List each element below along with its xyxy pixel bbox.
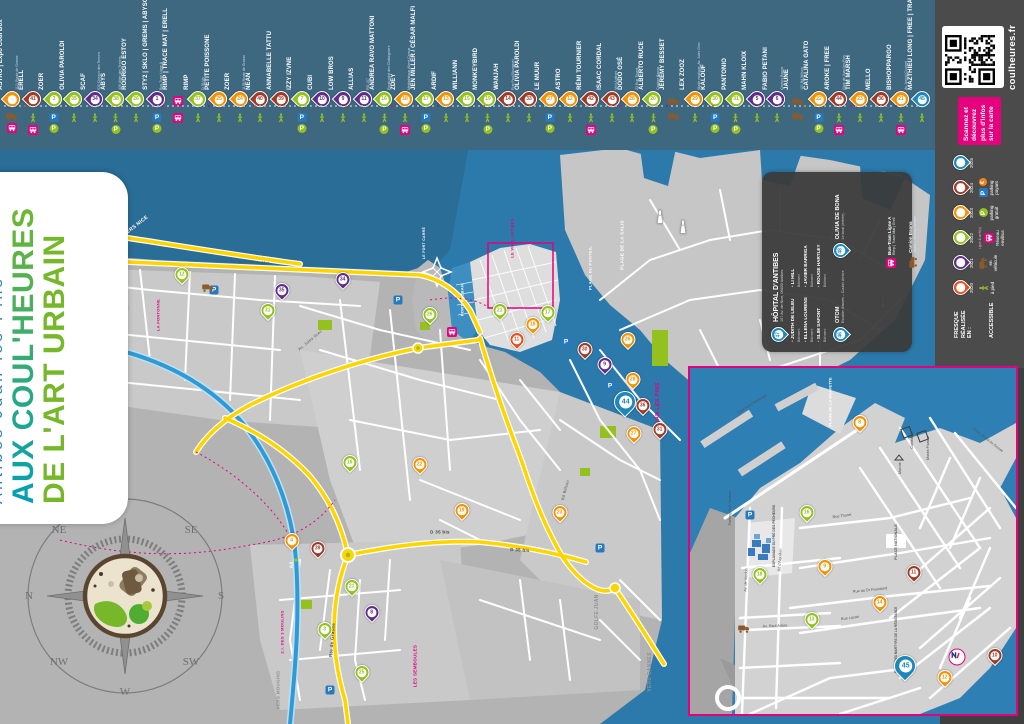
parking-paid-icon[interactable]: P — [979, 189, 988, 198]
artist-name: ABYS — [101, 6, 108, 90]
artist-address: Camion Baona — [656, 6, 660, 90]
artist-address: Gare de Juan-les-Pins — [842, 6, 846, 90]
walk-icon[interactable] — [318, 113, 326, 123]
hospital-artist-sub: Bâtiment — [823, 244, 827, 287]
parking-free-icon[interactable]: P — [111, 125, 120, 134]
hospital-artist-sub: Bâtiment — [823, 297, 827, 342]
walk-icon[interactable] — [91, 113, 99, 123]
parking-paid-icon[interactable]: P — [711, 113, 720, 122]
parking-icon[interactable]: P — [746, 511, 755, 520]
qr-code[interactable] — [942, 26, 1004, 88]
hospital-artist-name: SLIM SAFONT — [816, 297, 821, 342]
walk-icon[interactable] — [979, 284, 989, 292]
transport-legend-chip: Camion BaonaJaune | Jérémy Besset — [908, 176, 917, 268]
legend-access-item: à pied — [979, 277, 1006, 299]
artist-name: OLIVIA PAROLDI — [60, 6, 67, 90]
walk-icon[interactable] — [504, 113, 512, 123]
parking-free-icon[interactable]: P — [483, 125, 492, 134]
compass-point-label: SW — [183, 656, 200, 668]
artist-name: DODO OSÉ — [618, 6, 625, 90]
map-pin[interactable] — [950, 227, 971, 248]
artist-name: RIMP | TRACE MAT | ERELL — [163, 6, 170, 90]
artist-name: OLIVIA PAROLDI — [515, 6, 522, 90]
map-pin[interactable]: 9 — [814, 556, 835, 577]
artist-name: MAZTHIEU LONG | FREE | TRACE MAT — [908, 6, 915, 90]
artist-name: LEX ZOOZ — [680, 6, 687, 90]
hospital-sub-lines: Escalier d'accès – Couloir Ambre — [841, 270, 845, 323]
envibus-icon[interactable] — [834, 125, 844, 135]
compass-point-label: N — [25, 590, 33, 602]
map-pin[interactable]: 48 — [830, 240, 851, 261]
hospital-sub-entry: 48OLIVIA DE BONALe local (entrée) — [833, 194, 848, 258]
map-title-line1: AUX COUL'HEURES — [9, 189, 40, 504]
map-pin[interactable]: 46 — [830, 324, 851, 345]
walk-icon[interactable] — [256, 113, 264, 123]
artist-name: PANTONIO — [722, 6, 729, 90]
parking-free-icon[interactable]: P — [153, 124, 162, 133]
walk-icon[interactable] — [649, 113, 657, 123]
legend-year-item: 2024 — [953, 177, 975, 199]
walk-icon[interactable] — [877, 113, 885, 123]
artist-name: MAHN KLOIX — [742, 6, 749, 90]
walk-icon[interactable] — [773, 113, 781, 123]
parking-free-icon[interactable]: P — [421, 124, 430, 133]
artist-name: JEN MILLER / CÉSAR MALFI — [412, 6, 419, 90]
artist-name: BISHOPPARGO — [887, 6, 894, 90]
map-pin[interactable] — [950, 277, 971, 298]
route-dotted-line — [4, 105, 930, 108]
legend-year-item: 2025 — [953, 152, 975, 174]
walk-icon[interactable] — [215, 113, 223, 123]
walk-icon[interactable] — [132, 113, 140, 123]
legend-year-label: 2024 — [970, 183, 975, 193]
legend-access-row: ACCESSIBLE à pieden véhiculeLigne & arrê… — [979, 152, 1006, 338]
hospital-artist-sub: Bâtiment — [810, 297, 814, 342]
website-url: coulheures.fr — [1007, 25, 1018, 90]
map-pin[interactable] — [950, 202, 971, 223]
legend-access-label: Réseau envibus — [996, 227, 1006, 249]
walk-icon[interactable] — [360, 113, 368, 123]
hospital-artist-sub: Bâtiment — [810, 244, 814, 287]
walk-icon[interactable] — [918, 113, 926, 123]
legend-access-label: parking payant — [990, 177, 1000, 199]
walk-icon[interactable] — [608, 113, 616, 123]
legend-access-item: P€parking payant — [979, 177, 1006, 199]
artist-name: ERELL — [19, 6, 26, 90]
legend-access-item: en véhicule — [979, 252, 1006, 274]
artist-name: RODRIGO ESTOY — [122, 6, 129, 90]
walk-icon[interactable] — [628, 113, 636, 123]
artist-name: FABIO PETANI — [763, 6, 770, 90]
artist-address: Av. Amiral Courbet — [904, 6, 908, 90]
hospital-sub-lines: Le local (entrée) — [841, 194, 845, 239]
map-pin[interactable]: 16 — [796, 502, 817, 523]
map-pin[interactable] — [950, 177, 971, 198]
walk-icon[interactable] — [339, 113, 347, 123]
envibus-icon[interactable] — [586, 125, 596, 135]
parking-paid-icon[interactable]: P — [297, 113, 306, 122]
map-pin[interactable] — [950, 252, 971, 273]
envibus-icon[interactable] — [886, 258, 896, 268]
truck-icon[interactable] — [6, 113, 18, 121]
artist-name: ZOER — [39, 6, 46, 90]
artist-name: WANJAH — [494, 6, 501, 90]
hospital-artist-name: ROUGE HARTLEY — [816, 244, 821, 287]
legend-access-sublabel: Ligne & arrêt(s) — [979, 227, 982, 249]
walk-icon[interactable] — [525, 113, 533, 123]
legend-year-label: 2021 — [970, 258, 975, 268]
hospital-artist-name: JUDITH DE LELEU — [790, 297, 795, 342]
spray-can-illustration — [85, 556, 165, 636]
walk-icon[interactable] — [236, 113, 244, 123]
envibus-icon[interactable] — [7, 123, 17, 133]
legend-year-item: 2023 — [953, 202, 975, 224]
parking-free-icon[interactable]: P — [545, 124, 554, 133]
walk-icon[interactable] — [442, 113, 450, 123]
walk-icon[interactable] — [587, 113, 595, 123]
envibus-icon[interactable] — [984, 233, 994, 243]
legend-year-item: 2021 — [953, 252, 975, 274]
envibus-icon[interactable] — [400, 125, 410, 135]
hospital-artist-sub: Bâtiment — [797, 244, 801, 287]
walk-icon[interactable] — [401, 113, 409, 123]
map-pin[interactable]: 8 — [849, 412, 870, 433]
truck-icon[interactable] — [792, 113, 804, 121]
title-banner: Antibes Juan-les-Pins AUX COUL'HEURES DE… — [0, 172, 128, 524]
map-title-line2: DE L'ART URBAIN — [40, 189, 71, 504]
artist-name: ALLIAS — [350, 6, 357, 90]
map-pin[interactable]: 13 — [801, 609, 822, 630]
chip-line1: Bus-Tram Ligne A — [887, 217, 892, 255]
tourism-logo-icon[interactable] — [949, 649, 966, 666]
artist-name: MELLO — [866, 6, 873, 90]
legend-access-title: ACCESSIBLE — [989, 304, 996, 338]
parking-free-icon[interactable]: P — [649, 125, 658, 134]
artist-name: KALOUF — [701, 6, 708, 90]
legend-access-label: à pied — [991, 282, 996, 294]
hospital-artist-group: LI HILLBâtimentJAVIER BARRIGABâtimentROU… — [790, 244, 827, 287]
artist-name: CATALINA GATO — [804, 6, 811, 90]
legend-year-item: 2020 — [953, 277, 975, 299]
map-pin[interactable]: 14 — [869, 592, 890, 613]
legend-year-label: 2020 — [970, 283, 975, 293]
artist-name: PETITE POISSONE — [205, 6, 212, 90]
walk-icon[interactable] — [29, 113, 37, 123]
parking-free-icon[interactable]: P — [711, 124, 720, 133]
legend-sidebar: FRESQUE RÉALISÉE EN : 202020212022202320… — [935, 0, 1024, 368]
walk-icon[interactable] — [835, 113, 843, 123]
walk-icon[interactable] — [484, 113, 492, 123]
truck-icon[interactable] — [668, 113, 680, 121]
walk-icon[interactable] — [691, 113, 699, 123]
walk-icon[interactable] — [112, 113, 120, 123]
parking-paid-icon[interactable]: P — [814, 113, 823, 122]
artist-name: ARDIF — [432, 6, 439, 90]
truck-icon[interactable] — [909, 256, 917, 268]
map-pin[interactable]: 47 — [768, 324, 789, 345]
walk-icon[interactable] — [566, 113, 574, 123]
artist-name: ANDREA RAVO MATTONI — [370, 6, 377, 90]
hospital-artist-name: LI HILL — [790, 244, 795, 287]
envibus-icon[interactable] — [28, 125, 38, 135]
artist-name: ASTRO — [556, 6, 563, 90]
artist-name: STY2 | SKLO | GREMS | ABYSCAF — [143, 6, 150, 90]
transport-legend-chip: Bus-Tram Ligne ARimp | Trace Mat | Erell — [886, 176, 896, 268]
euro-icon[interactable]: € — [979, 179, 987, 187]
artist-name: ASTRO | Expo Coul'Box — [0, 6, 5, 90]
walk-icon[interactable] — [194, 113, 202, 123]
hospital-artist-group: JUDITH DE LELEUBâtimentELLENA LOURENSBât… — [790, 297, 827, 342]
parking-free-icon[interactable]: P — [297, 124, 306, 133]
compass-point-label: NW — [50, 656, 68, 668]
parking-free-icon[interactable]: P — [380, 125, 389, 134]
envibus-icon[interactable] — [173, 113, 183, 123]
hospital-title: HÔPITAL D'ANTIBES — [773, 253, 780, 322]
artist-name: ZOER — [226, 6, 233, 90]
artist-name: RIMP — [184, 6, 191, 90]
hospital-sub-entry: 46OTOMEscalier d'accès – Couloir Ambre — [833, 270, 848, 342]
legend-year-label: 2025 — [970, 158, 975, 168]
compass-point-label: S — [218, 590, 224, 602]
artist-name: SCAF — [81, 6, 88, 90]
parking-free-icon[interactable]: P — [49, 124, 58, 133]
legend-access-item: Ligne & arrêt(s)Réseau envibus — [979, 227, 1006, 249]
compass-point-label: SE — [185, 524, 198, 536]
artist-name: ANNABELLE TATTU — [267, 6, 274, 90]
hospital-artist-sub: Bâtiment — [797, 297, 801, 342]
artist-name: JAUNE — [784, 6, 791, 90]
chip-line2: Rimp | Trace Mat | Erell — [892, 217, 896, 255]
artist-name: ALBERTO RUCE — [639, 6, 646, 90]
hospital-artist-name: JAVIER BARRIGA — [803, 244, 808, 287]
walk-icon[interactable] — [380, 113, 388, 123]
artist-name: TIM MARSH — [846, 6, 853, 90]
city-title: Antibes Juan-les-Pins — [0, 189, 6, 504]
walk-icon[interactable] — [897, 113, 905, 123]
compass-point-label: NE — [52, 524, 67, 536]
map-pin[interactable]: 10 — [984, 645, 1005, 666]
artist-name: WILLIANN — [453, 6, 460, 90]
walk-icon[interactable] — [463, 113, 471, 123]
walk-icon[interactable] — [856, 113, 864, 123]
artist-name: MONKEYBIRD — [474, 6, 481, 90]
artist-header-bar: ASTRO | Expo Coul'Box→1111 Route de Gras… — [0, 0, 935, 150]
walk-icon[interactable] — [277, 113, 285, 123]
map-pin[interactable]: 11 — [903, 562, 924, 583]
qr-scan-note: Scannez et découvrez plus d'infos sur la… — [958, 97, 1001, 145]
old-town-inset-map: PLAGE DE LA GRAVETTEQuai Henri RambaudPa… — [688, 366, 1018, 716]
artist-address: Camion Baona — [780, 6, 784, 90]
map-pin[interactable]: 12 — [934, 667, 955, 688]
artist-name: AROKE | FREE — [825, 6, 832, 90]
map-pin[interactable]: 18 — [749, 564, 770, 585]
artist-entry: Av. Amiral CourbetMAZTHIEU LONG | FREE |… — [912, 0, 933, 150]
parking-paid-icon[interactable]: P — [545, 113, 554, 122]
map-pin[interactable]: 45 — [889, 650, 920, 681]
walk-icon[interactable] — [70, 113, 78, 123]
legend-access-label: parking gratuit — [990, 202, 1000, 224]
map-pin[interactable] — [950, 152, 971, 173]
parking-paid-icon[interactable]: P — [49, 113, 58, 122]
legend-access-item: Pparking gratuit — [979, 202, 1006, 224]
artist-name: CUBI — [308, 6, 315, 90]
artist-name: NEAN — [246, 6, 253, 90]
artist-name: JÉRÉMY BESSET — [660, 6, 667, 90]
legend-access-label: en véhicule — [989, 252, 999, 274]
parking-free-icon[interactable]: P — [979, 209, 988, 218]
legend-years-title: FRESQUE RÉALISÉE EN : — [954, 304, 974, 338]
legend-year-item: 2022 — [953, 227, 975, 249]
artist-name: ZDEY — [391, 6, 398, 90]
parking-free-icon[interactable]: P — [814, 124, 823, 133]
chip-line2: Jaune | Jérémy Besset — [913, 217, 917, 254]
parking-paid-icon[interactable]: P — [421, 113, 430, 122]
artist-name: RÉMI TOURNIER — [577, 6, 584, 90]
truck-icon[interactable] — [979, 257, 987, 269]
hospital-artist-name: ELLENA LOURENS — [803, 297, 808, 342]
walk-icon[interactable] — [753, 113, 761, 123]
hospital-address: 107 Av. de Nice, 06600 Antibes — [780, 253, 784, 322]
artist-name: LE MUUR — [536, 6, 543, 90]
legend-year-label: 2022 — [970, 233, 975, 243]
artist-name: ISAAC CORDAL — [598, 6, 605, 90]
artist-name: IZZY IZVNE — [288, 6, 295, 90]
legend-years-row: FRESQUE RÉALISÉE EN : 202020212022202320… — [953, 152, 975, 338]
envibus-icon[interactable] — [896, 125, 906, 135]
parking-paid-icon[interactable]: P — [153, 113, 162, 122]
artist-name: LOW BROS — [329, 6, 336, 90]
walk-icon[interactable] — [732, 113, 740, 123]
parking-free-icon[interactable]: P — [731, 125, 740, 134]
legend-year-label: 2023 — [970, 208, 975, 218]
compass-point-label: W — [120, 686, 130, 698]
